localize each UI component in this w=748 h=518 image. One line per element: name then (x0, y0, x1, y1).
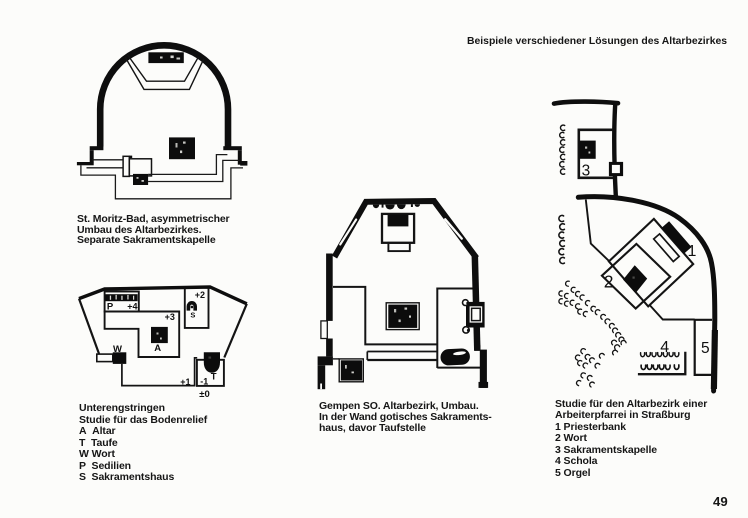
svg-text:S: S (190, 310, 195, 319)
svg-text:+2: +2 (195, 290, 205, 300)
svg-text:P: P (107, 302, 114, 313)
svg-text:2: 2 (604, 272, 614, 292)
svg-text:T: T (211, 372, 217, 383)
svg-text:+4: +4 (127, 301, 137, 311)
svg-text:+1: +1 (180, 377, 190, 387)
svg-text:-1: -1 (200, 376, 208, 386)
svg-text:±0: ±0 (199, 389, 210, 400)
svg-text:+3: +3 (165, 312, 175, 322)
svg-text:A: A (154, 343, 161, 354)
svg-text:5: 5 (701, 340, 710, 357)
svg-text:3: 3 (582, 163, 591, 180)
svg-text:1: 1 (688, 243, 697, 260)
svg-text:W: W (113, 344, 122, 355)
